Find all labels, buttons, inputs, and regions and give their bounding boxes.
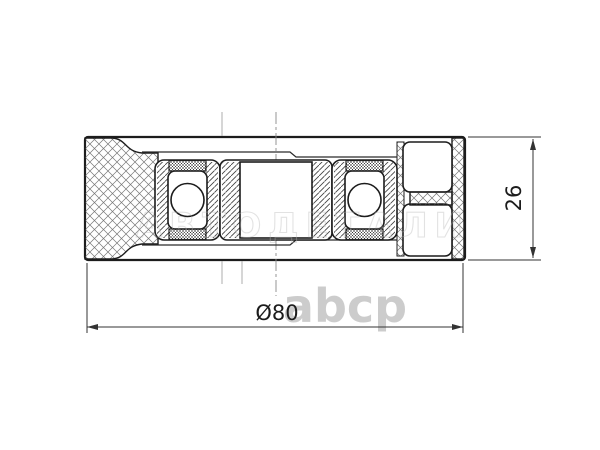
- technical-drawing-canvas: АВТОДЕТАЛИ abcp Ø80 26: [0, 0, 600, 450]
- pulley-body: [85, 112, 465, 296]
- right-top-pocket: [403, 142, 452, 192]
- drawing-page: АВТОДЕТАЛИ abcp Ø80 26: [0, 0, 600, 450]
- right-top-seal: [346, 161, 383, 172]
- logo-watermark-text: abcp: [283, 279, 407, 333]
- right-web-bar-hatch: [410, 192, 452, 205]
- center-watermark-text: АВТОДЕТАЛИ: [136, 206, 470, 246]
- dimension-width: 26: [468, 137, 541, 260]
- width-label: 26: [502, 185, 526, 212]
- diameter-label: Ø80: [255, 301, 298, 325]
- left-top-seal: [169, 161, 206, 172]
